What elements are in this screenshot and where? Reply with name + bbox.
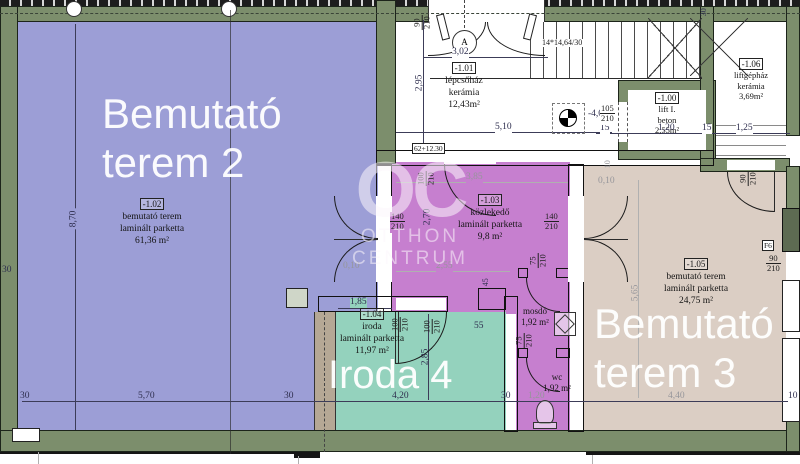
room-name: wc xyxy=(552,372,563,382)
door-width: 100 xyxy=(423,319,432,334)
dim: 0,10 xyxy=(598,177,615,187)
f6-tag: F6 xyxy=(762,240,774,251)
lift-door-icon xyxy=(618,102,628,142)
door-height: 210 xyxy=(400,317,410,332)
door-size: 100210 xyxy=(423,319,444,334)
door-size: 105210 xyxy=(600,104,615,125)
big-label-line: terem 2 xyxy=(102,139,282,188)
door-beige-meet-line xyxy=(584,239,628,240)
room-name: iroda xyxy=(362,322,382,332)
room-floor: kerámia xyxy=(737,81,764,91)
wall-wc-divider-a xyxy=(518,348,528,358)
room-area: 12,43m² xyxy=(448,100,480,110)
door-beige-topright-leaf xyxy=(774,172,775,212)
room-floor: kerámia xyxy=(449,88,480,98)
dim: 15 xyxy=(600,124,610,134)
door-height: 210 xyxy=(538,253,548,268)
room-floor: laminált parketta xyxy=(340,334,404,344)
axis-label: A xyxy=(461,37,468,47)
opening-pink-beige xyxy=(568,196,584,282)
room-name: lift I. xyxy=(659,104,676,114)
room-name: bemutató terem xyxy=(666,272,725,282)
label-iroda: -1.04 iroda laminált parketta 11,97 m² xyxy=(317,308,427,358)
window-dark-icon xyxy=(782,208,800,252)
label-bemutato-3: -1.05 bemutató terem laminált parketta 2… xyxy=(638,258,754,308)
opening-beige-top xyxy=(727,160,775,170)
room-area: 61,36 m² xyxy=(135,236,169,246)
door-size: 90210 xyxy=(739,171,760,186)
big-label-bemutato-3: Bemutató terem 3 xyxy=(594,300,774,397)
door-width: 90 xyxy=(413,15,422,30)
room-name: lépcsőház xyxy=(445,76,482,86)
dim: 45 xyxy=(482,278,490,286)
dim: 30 xyxy=(501,392,511,402)
room-code: -1.04 xyxy=(360,308,385,320)
column-iroda xyxy=(286,288,308,308)
dim: 8,70 xyxy=(69,209,79,230)
room-name: bemutató terem xyxy=(122,212,181,222)
door-height: 210 xyxy=(766,263,781,273)
level-marker-icon xyxy=(559,109,577,127)
dim: 5,10 xyxy=(495,123,512,133)
witness-line xyxy=(298,456,299,464)
big-label-line: Iroda 4 xyxy=(328,352,453,398)
room-code: -1.02 xyxy=(140,198,165,210)
bottom-left-notch xyxy=(12,428,40,442)
watermark-logo: OC OTTHON CENTRUM xyxy=(330,152,490,270)
room-name: liftgépház xyxy=(734,70,768,80)
dim: 10 xyxy=(788,392,798,402)
wall-mosdo-divider-a xyxy=(518,268,528,278)
room-area: 3,69m² xyxy=(739,91,763,101)
grid-bubble-icon xyxy=(221,1,237,17)
dim: 1,85 xyxy=(350,298,367,308)
dim: 30 xyxy=(20,392,30,402)
door-width: 100 xyxy=(391,317,400,332)
label-mosdo: mosdó 1,92 m² xyxy=(512,306,558,329)
dim: 1,25 xyxy=(736,124,753,134)
dim: 5,70 xyxy=(138,392,155,402)
room-code: -1.00 xyxy=(655,92,680,104)
door-size: 140210 xyxy=(544,212,559,233)
dim: 4,20 xyxy=(392,392,409,402)
door-size: 75210 xyxy=(529,253,550,268)
toilet-bowl-icon xyxy=(536,400,554,424)
sink-basin-icon xyxy=(555,314,575,334)
wall-top-centerline xyxy=(0,13,800,14)
dim: 30 xyxy=(284,392,294,402)
dim: 3,02 xyxy=(452,48,469,58)
watermark-line2: CENTRUM xyxy=(330,248,490,270)
dim: 2,85 xyxy=(421,349,431,366)
floor-plan: A -4,00 Bemutató terem 2 Iroda 4 Bemutat… xyxy=(0,0,800,464)
door-height: 210 xyxy=(544,221,559,231)
big-label-bemutato-2: Bemutató terem 2 xyxy=(102,90,282,187)
wall-bottom xyxy=(0,430,800,452)
door-width: 75 xyxy=(529,253,538,268)
dim: 2,95 xyxy=(415,75,425,92)
door-size: 75210 xyxy=(515,333,536,348)
witness-line xyxy=(592,455,593,464)
door-width: 105 xyxy=(600,104,615,113)
room-code: -1.06 xyxy=(739,58,764,70)
room-floor: laminált parketta xyxy=(120,224,184,234)
door-width: 140 xyxy=(544,212,559,221)
column-lobby xyxy=(478,288,506,310)
wall-wc-divider-b xyxy=(556,348,570,358)
wall-right-beige-top xyxy=(786,166,800,212)
door-height: 210 xyxy=(600,113,615,123)
door-size: 90210 xyxy=(766,254,781,275)
dim-stairs: 14*14,64/30 xyxy=(541,39,583,47)
dim: 10 xyxy=(604,160,612,168)
window-icon xyxy=(782,338,800,422)
door-size: 90210 xyxy=(413,15,434,30)
door-width: 90 xyxy=(766,254,781,263)
room-area: 24,75 m² xyxy=(679,296,713,306)
window-icon xyxy=(782,280,800,332)
dim: 55 xyxy=(474,322,484,332)
dim: 1,20 xyxy=(528,392,545,402)
dim-line-pink-bottom xyxy=(396,271,510,272)
door-height: 210 xyxy=(748,171,758,186)
door-width: 75 xyxy=(515,333,524,348)
room-area: 1,92 m² xyxy=(521,317,549,327)
label-lepcsohaz: -1.01 lépcsőház kerámia 12,43m² xyxy=(412,62,516,112)
dim: 15 xyxy=(702,124,712,134)
big-label-iroda-4: Iroda 4 xyxy=(328,352,453,398)
watermark-monogram: OC xyxy=(330,152,490,226)
dim: 5,65 xyxy=(631,285,641,302)
door-width: 90 xyxy=(739,171,748,186)
wall-purple-stair-divider xyxy=(376,0,396,164)
wall-left xyxy=(0,6,18,452)
dim: 4,40 xyxy=(668,392,685,402)
door-height: 210 xyxy=(422,15,432,30)
grid-bubble-icon xyxy=(66,1,82,17)
dim: 30 xyxy=(2,266,12,276)
room-name: mosdó xyxy=(523,306,547,316)
watermark-line1: OTTHON xyxy=(330,226,490,248)
door-size: 100210 xyxy=(391,317,412,332)
door-height: 210 xyxy=(524,333,534,348)
grid-line-vertical xyxy=(230,10,231,454)
witness-line xyxy=(38,452,39,464)
label-liftgephaz: -1.06 liftgépház kerámia 3,69m² xyxy=(712,58,790,101)
room-code: -1.05 xyxy=(684,258,709,270)
dim: 1,20 xyxy=(658,124,675,134)
dim: 30 xyxy=(700,8,708,16)
label-bemutato-2: -1.02 bemutató terem laminált parketta 6… xyxy=(92,198,212,248)
big-label-line: Bemutató xyxy=(102,90,282,139)
toilet-tank-icon xyxy=(533,422,557,429)
room-floor: laminált parketta xyxy=(664,284,728,294)
room-area: 1,92 m² xyxy=(543,383,571,393)
door-height: 210 xyxy=(432,319,442,334)
room-area: 11,97 m² xyxy=(355,346,389,356)
dim-line-entrance xyxy=(424,57,548,58)
room-code: -1.01 xyxy=(452,62,477,74)
